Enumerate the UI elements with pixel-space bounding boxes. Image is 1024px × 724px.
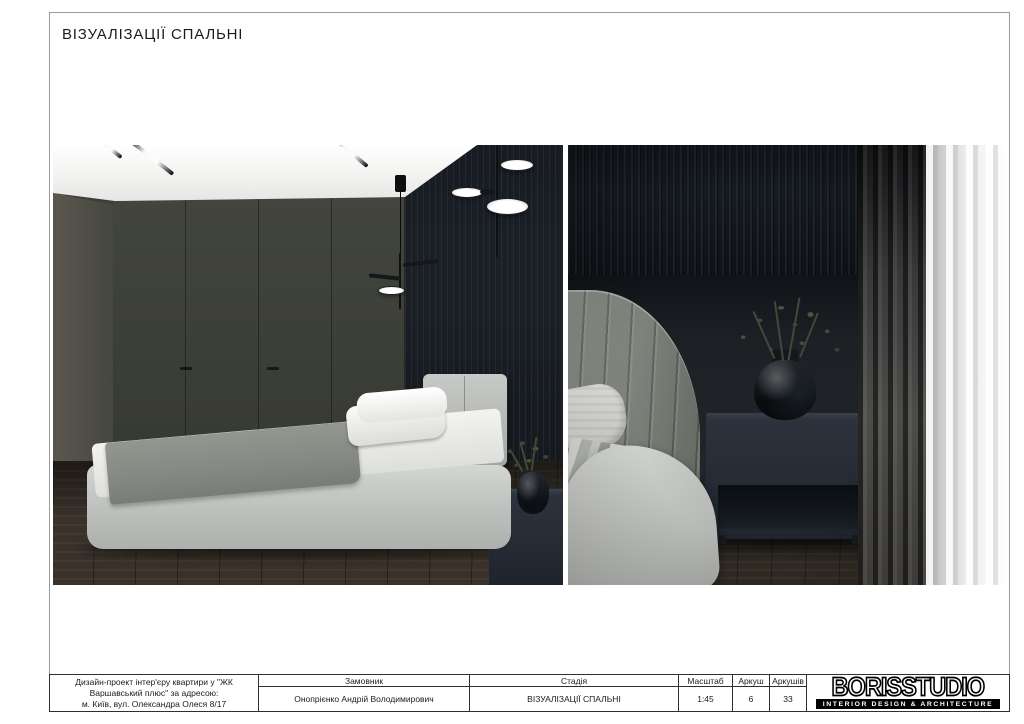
pendant-disc-lamp bbox=[500, 159, 534, 171]
sheet-number-label: Аркуш bbox=[733, 675, 769, 687]
pendant-cable bbox=[400, 191, 401, 255]
page-title: ВІЗУАЛІЗАЦІЇ СПАЛЬНІ bbox=[62, 26, 243, 43]
scale-value: 1:45 bbox=[679, 687, 732, 711]
sheet-number-value: 6 bbox=[733, 687, 769, 711]
pendant-disc-lamp bbox=[378, 286, 405, 295]
sheets-total-cell: Аркушів 33 bbox=[770, 675, 807, 711]
pendant-hub bbox=[480, 189, 495, 195]
side-wall bbox=[53, 189, 115, 481]
dark-curtain bbox=[858, 145, 930, 585]
studio-logo: BORISSTUDIO INTERIOR DESIGN & ARCHITECTU… bbox=[807, 675, 1009, 711]
wardrobe-handle bbox=[267, 367, 279, 370]
project-description-cell: Дизайн-проект інтер'єру квартири у "ЖК В… bbox=[50, 675, 259, 711]
project-line-2: Варшавський плюс" за адресою: bbox=[90, 688, 219, 699]
client-label: Замовник bbox=[259, 675, 469, 687]
sheet-number-cell: Аркуш 6 bbox=[733, 675, 770, 711]
stage-value: ВІЗУАЛІЗАЦІЇ СПАЛЬНІ bbox=[470, 687, 678, 711]
render-nightstand-closeup bbox=[568, 145, 1007, 585]
title-block: Дизайн-проект інтер'єру квартири у "ЖК В… bbox=[49, 674, 1010, 712]
sheets-total-label: Аркушів bbox=[770, 675, 806, 687]
wardrobe-handle bbox=[180, 367, 192, 370]
vase bbox=[517, 472, 549, 514]
project-line-3: м. Київ, вул. Олександра Олеся 8/17 bbox=[82, 699, 226, 710]
scale-cell: Масштаб 1:45 bbox=[679, 675, 733, 711]
pendant-disc-lamp bbox=[486, 198, 529, 215]
pendant-disc-lamp bbox=[451, 187, 483, 198]
project-line-1: Дизайн-проект інтер'єру квартири у "ЖК bbox=[75, 677, 233, 688]
logo-brand-text: BORISSTUDIO bbox=[832, 676, 985, 699]
sheer-curtain bbox=[926, 145, 1007, 585]
client-value: Онопрієнко Андрій Володимирович bbox=[259, 687, 469, 711]
ceiling-mount bbox=[395, 175, 406, 192]
pendant-rod bbox=[399, 253, 401, 309]
stage-cell: Стадія ВІЗУАЛІЗАЦІЇ СПАЛЬНІ bbox=[470, 675, 679, 711]
render-bedroom-side-view bbox=[53, 145, 563, 585]
sheets-total-value: 33 bbox=[770, 687, 806, 711]
scale-label: Масштаб bbox=[679, 675, 732, 687]
stage-label: Стадія bbox=[470, 675, 678, 687]
sheet-page: { "header": { "title": "ВІЗУАЛІЗАЦІЇ СПА… bbox=[0, 0, 1024, 724]
client-cell: Замовник Онопрієнко Андрій Володимирович bbox=[259, 675, 470, 711]
